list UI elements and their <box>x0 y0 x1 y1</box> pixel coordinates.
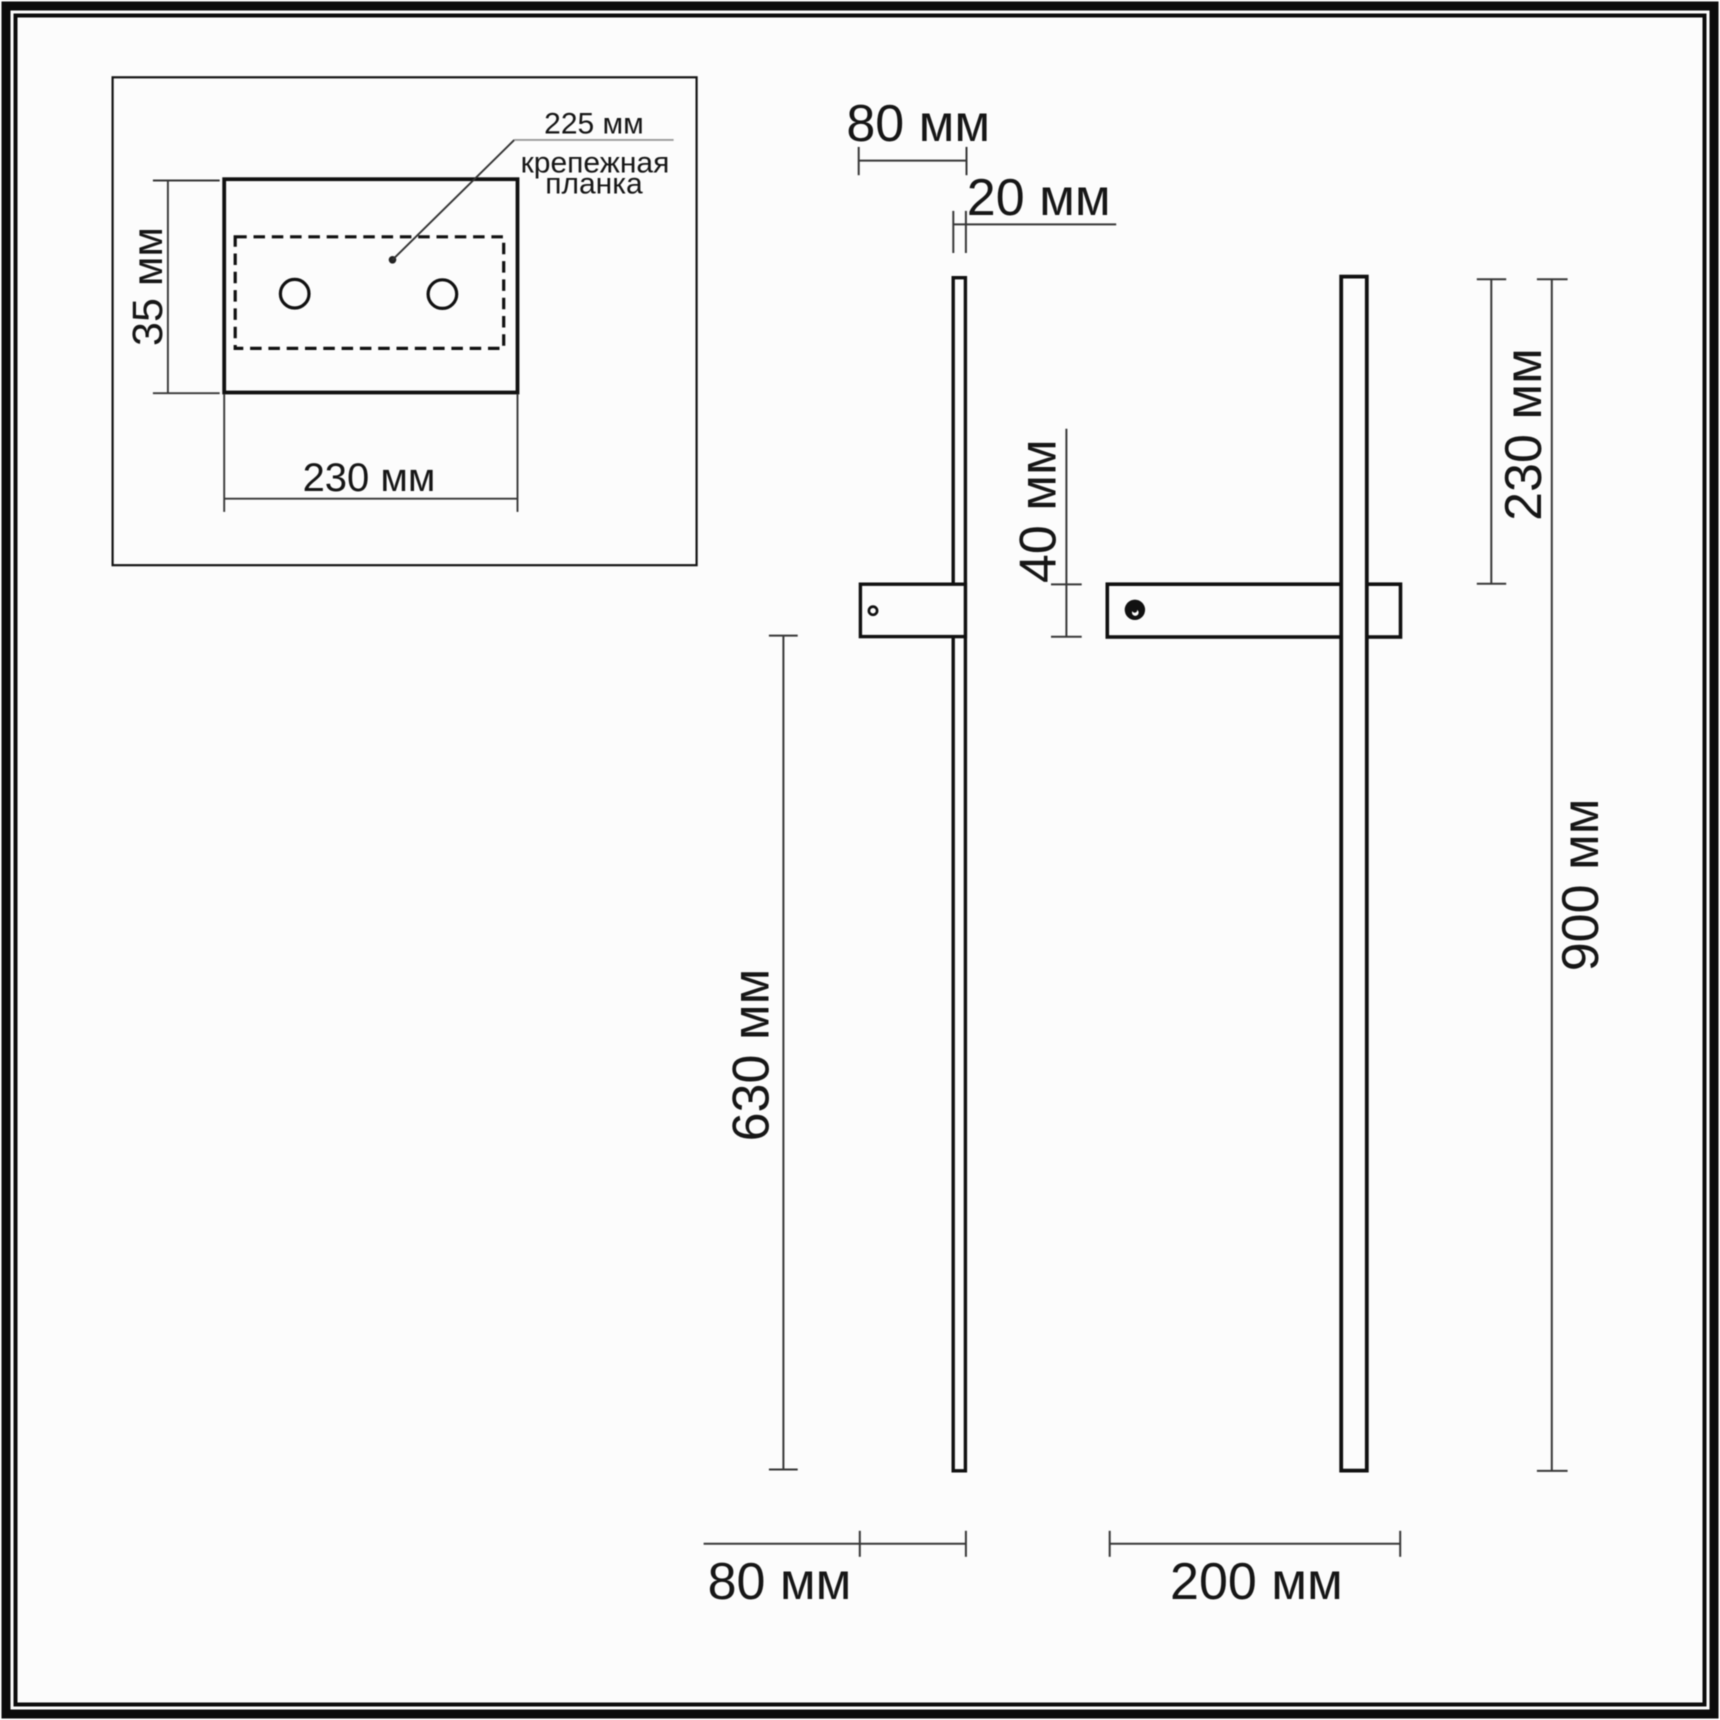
svg-text:40 мм: 40 мм <box>1009 439 1067 583</box>
svg-text:20 мм: 20 мм <box>967 169 1111 227</box>
svg-text:225 мм: 225 мм <box>544 108 644 141</box>
svg-text:900 мм: 900 мм <box>1552 799 1610 972</box>
svg-text:230 мм: 230 мм <box>303 456 436 500</box>
svg-text:630 мм: 630 мм <box>723 969 781 1142</box>
svg-text:80 мм: 80 мм <box>846 95 990 153</box>
svg-text:планка: планка <box>545 168 643 201</box>
svg-text:80 мм: 80 мм <box>708 1553 852 1611</box>
svg-text:230 мм: 230 мм <box>1495 348 1553 521</box>
svg-text:35 мм: 35 мм <box>124 227 172 346</box>
svg-text:200 мм: 200 мм <box>1170 1553 1343 1611</box>
